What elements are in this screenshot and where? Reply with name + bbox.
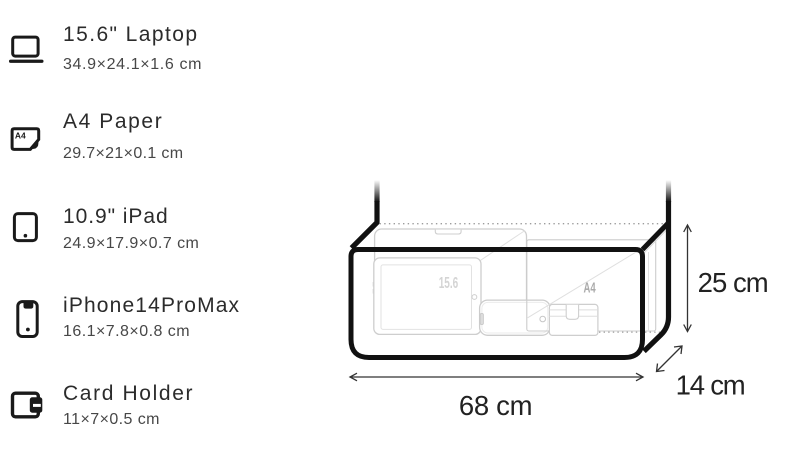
svg-text:25 cm: 25 cm <box>698 267 768 298</box>
svg-text:14 cm: 14 cm <box>676 370 745 401</box>
svg-text:68 cm: 68 cm <box>459 390 532 421</box>
svg-text:A4: A4 <box>584 279 597 296</box>
svg-text:15.6: 15.6 <box>439 275 459 292</box>
